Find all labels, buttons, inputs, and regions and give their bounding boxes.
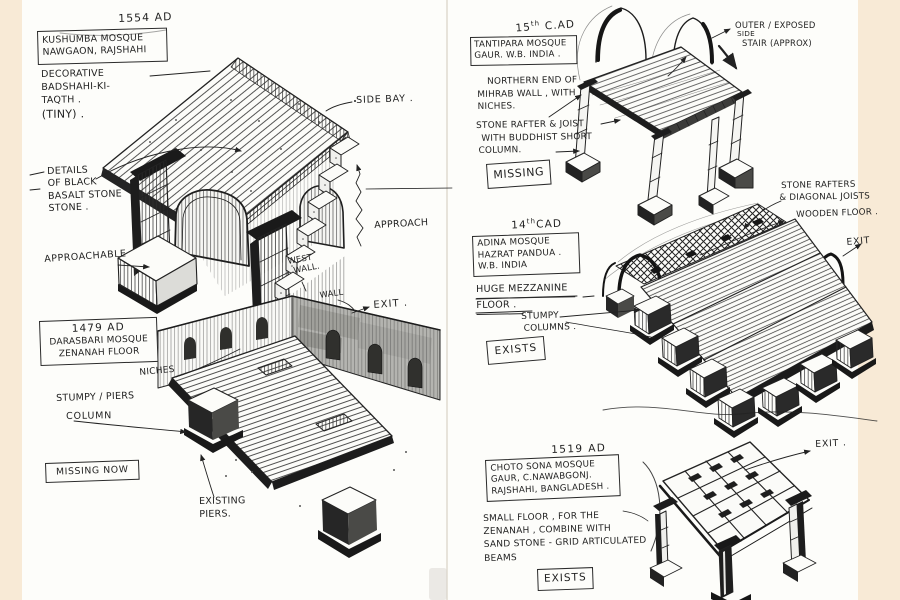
kushumba-title-box: KUSHUMBA MOSQUE NAWGAON, RAJSHAHI — [37, 28, 168, 65]
label-line: PIERS. — [199, 507, 246, 521]
darasbari-title-box: 1479 AD DARASBARI MOSQUE ZENANAH FLOOR — [39, 317, 158, 366]
note-line: DECORATIVE — [41, 68, 110, 82]
chotosona-title-box: CHOTO SONA MOSQUE GAUR, C.NAWABGONJ. RAJ… — [485, 454, 621, 502]
small-floor-note: SMALL FLOOR , FOR THE ZENANAH , COMBINE … — [483, 509, 647, 566]
century-num: 15 — [515, 21, 531, 34]
sketch-canvas — [0, 0, 900, 600]
existing-piers-label: EXISTING PIERS. — [199, 494, 246, 521]
details-note: DETAILS OF BLACK BASALT STONE STONE . — [47, 163, 123, 215]
century-era: C.AD — [544, 18, 575, 32]
missing-box: MISSING — [486, 160, 552, 189]
label-line: EXISTING — [199, 494, 246, 508]
note-line: STONE . — [48, 200, 122, 215]
note-line: TAQTH . — [41, 93, 110, 107]
mihrab-note: NORTHERN END OF MIHRAB WALL , WITH NICHE… — [477, 74, 578, 114]
note-line: NORTHERN END OF — [477, 74, 577, 88]
note-line: BADSHAHI-KI- — [41, 81, 110, 95]
column-label: COLUMN — [66, 410, 112, 423]
note-line: NICHES. — [477, 99, 577, 113]
note-line: MIHRAB WALL , WITH — [477, 87, 577, 101]
stair-note: OUTER / EXPOSED SIDE STAIR (APPROX) — [735, 21, 816, 47]
century-era: CAD — [536, 218, 562, 231]
note-line: HUGE MEZZANINE — [476, 281, 575, 299]
stumpy-columns-label: STUMPY COLUMNS . — [521, 309, 577, 335]
rafter-note: STONE RAFTER & JOIST WITH BUDDHIST SHORT… — [476, 118, 592, 158]
label-line: & DIAGONAL JOISTS — [779, 191, 870, 204]
note-line: WITH BUDDHIST SHORT — [476, 131, 592, 146]
sketchbook-scan: 1554 AD KUSHUMBA MOSQUE NAWGAON, RAJSHAH… — [0, 0, 900, 600]
missing-now-box: MISSING NOW — [45, 460, 140, 484]
note-line: STAIR (APPROX) — [742, 39, 816, 48]
adina-century: 14thCAD — [511, 216, 562, 233]
exit-label-left: EXIT . — [373, 297, 408, 313]
exit-label-bottom: EXIT . — [815, 437, 847, 451]
note-line: BASALT STONE — [48, 188, 122, 203]
chotosona-sketch — [650, 442, 816, 600]
kushumba-notes: DECORATIVE BADSHAHI-KI- TAQTH . (TINY) . — [41, 68, 111, 122]
title-line: NAWGAON, RAJSHAHI — [42, 44, 162, 59]
title-line: W.B. INDIA — [478, 259, 575, 274]
title-line: GAUR. W.B. INDIA . — [474, 50, 573, 63]
exists-box-adina: EXISTS — [486, 336, 546, 365]
note-line: (TINY) . — [42, 108, 111, 122]
note-line: COLUMN. — [476, 143, 592, 158]
tantipara-title-box: TANTIPARA MOSQUE GAUR. W.B. INDIA . — [470, 35, 577, 66]
label-line: COLUMNS . — [523, 321, 576, 335]
century-sup: th — [527, 217, 537, 225]
adina-title-box: ADINA MOSQUE HAZRAT PANDUA . W.B. INDIA — [472, 232, 580, 277]
note-line: FLOOR . — [476, 298, 523, 315]
century-num: 14 — [511, 219, 527, 232]
kushumba-year: 1554 AD — [118, 10, 173, 26]
tantipara-sketch — [566, 6, 753, 225]
century-sup: th — [531, 19, 541, 28]
exists-box-chotosona: EXISTS — [537, 567, 594, 591]
side-bay-label: SIDE BAY . — [356, 93, 414, 108]
rafters-label: STONE RAFTERS & DIAGONAL JOISTS — [781, 179, 870, 204]
exit-label-mid: EXIT — [846, 235, 871, 249]
